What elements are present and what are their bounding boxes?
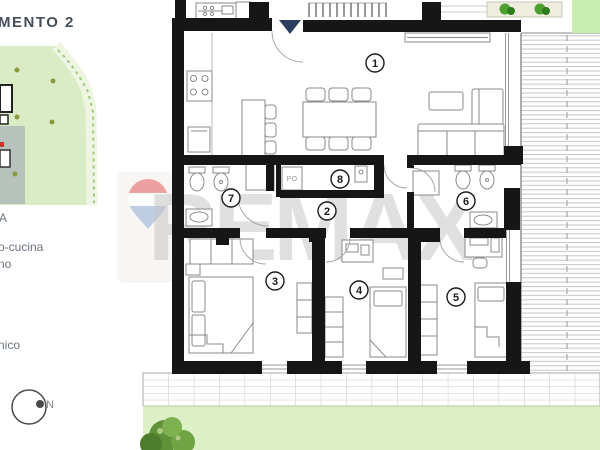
north-compass: N xyxy=(12,390,54,424)
apartment-title-fragment: MENTO 2 xyxy=(0,14,75,31)
room-label-hallway: 2 xyxy=(324,206,330,218)
room-label-bed3: 5 xyxy=(453,292,459,304)
dining-table xyxy=(303,88,376,150)
compass-dot xyxy=(36,400,44,408)
room-label-living: 1 xyxy=(372,58,378,70)
room-label-bath2: 6 xyxy=(463,196,469,208)
corner-green-patch xyxy=(572,0,600,33)
room-label-bed2: 4 xyxy=(356,285,363,297)
garden-lawn xyxy=(143,406,600,450)
legend-fragment-3: no xyxy=(0,257,12,271)
balcony-railing xyxy=(309,3,387,17)
room-label-storage: 8 xyxy=(337,174,343,186)
legend-fragment-1: A xyxy=(0,211,7,225)
appliance-label: PO xyxy=(286,176,297,183)
room-label-bath1: 7 xyxy=(228,193,234,205)
legend-fragment-2: o-cucina xyxy=(0,240,44,254)
right-terrace xyxy=(521,33,600,373)
site-plan-thumbnail xyxy=(0,46,96,205)
floor-plan-canvas: REMAX xyxy=(0,0,600,450)
entrance-arrow-icon xyxy=(279,20,301,34)
living-room-furniture xyxy=(405,33,504,157)
room-label-bed1: 3 xyxy=(272,276,278,288)
floor-plan-page: { "sidebar": { "title_fragment": "MENTO … xyxy=(0,0,600,450)
north-label: N xyxy=(46,399,54,411)
legend-fragment-4: nico xyxy=(0,338,20,352)
planter-box xyxy=(441,2,562,17)
bottom-terrace xyxy=(143,373,600,406)
